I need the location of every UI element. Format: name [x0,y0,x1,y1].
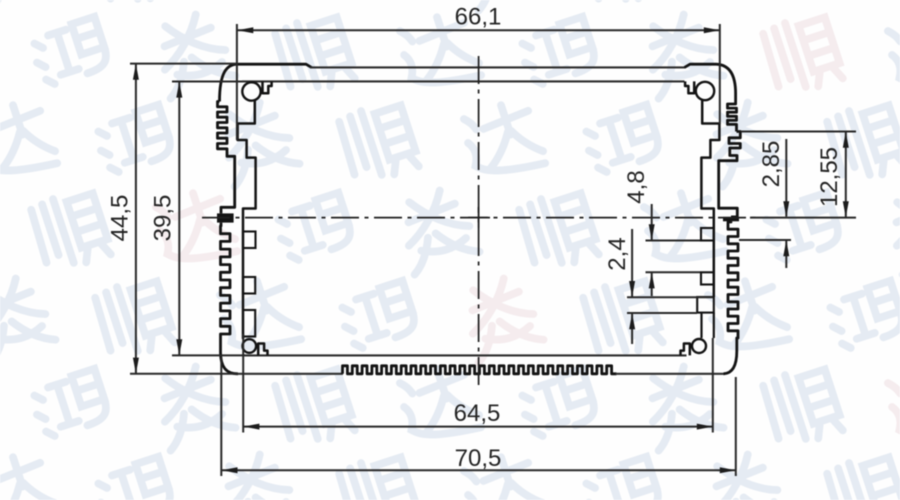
svg-text:12,55: 12,55 [816,147,843,207]
svg-text:44,5: 44,5 [107,195,134,242]
svg-text:4,8: 4,8 [623,170,650,203]
svg-text:39,5: 39,5 [150,195,177,242]
svg-text:2,85: 2,85 [758,141,785,188]
svg-text:64,5: 64,5 [454,400,501,427]
svg-text:66,1: 66,1 [455,4,502,31]
svg-text:70,5: 70,5 [455,445,502,472]
svg-text:2,4: 2,4 [604,237,631,270]
